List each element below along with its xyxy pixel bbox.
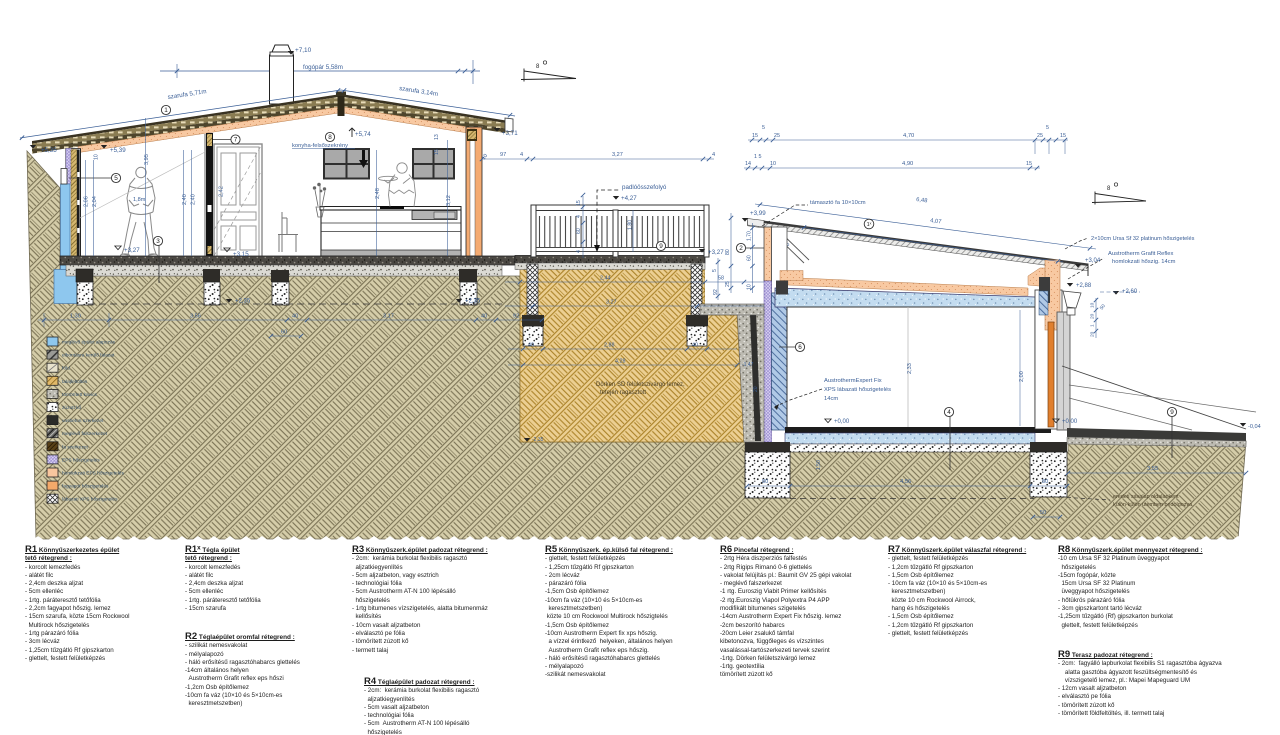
svg-text:3,27: 3,27 bbox=[612, 152, 623, 158]
svg-text:+3,15: +3,15 bbox=[233, 251, 249, 258]
svg-text:+3,71: +3,71 bbox=[502, 130, 518, 137]
svg-text:-2,35: -2,35 bbox=[532, 437, 544, 443]
svg-text:2,40: 2,40 bbox=[182, 194, 188, 205]
svg-text:+4,27: +4,27 bbox=[621, 195, 637, 202]
svg-text:1,30: 1,30 bbox=[70, 314, 81, 320]
svg-text:+2,35: +2,35 bbox=[235, 299, 251, 305]
svg-text:külön-külön ütemben bedolgozva: külön-külön ütemben bedolgozva. bbox=[1113, 502, 1194, 508]
svg-text:14cm: 14cm bbox=[824, 396, 838, 402]
svg-text:8: 8 bbox=[328, 134, 332, 141]
svg-text:40: 40 bbox=[528, 343, 534, 349]
svg-text:tetején ragasztott: tetején ragasztott bbox=[600, 390, 646, 396]
svg-text:80: 80 bbox=[762, 479, 768, 485]
svg-text:9: 9 bbox=[1170, 409, 1174, 416]
svg-text:vasbeton szerkezet: vasbeton szerkezet bbox=[62, 418, 104, 424]
svg-text:60: 60 bbox=[576, 228, 582, 234]
svg-text:50: 50 bbox=[1099, 303, 1107, 311]
svg-text:4: 4 bbox=[520, 152, 523, 158]
svg-text:1 5: 1 5 bbox=[754, 154, 762, 160]
svg-text:2,06: 2,06 bbox=[84, 196, 90, 207]
svg-text:+5,74: +5,74 bbox=[355, 131, 371, 138]
svg-text:2,33: 2,33 bbox=[907, 363, 913, 374]
svg-text:7: 7 bbox=[234, 137, 238, 144]
svg-text:10: 10 bbox=[770, 161, 776, 167]
svg-text:-1,47: -1,47 bbox=[742, 362, 754, 368]
svg-text:szarufa 5,71m: szarufa 5,71m bbox=[167, 88, 207, 101]
svg-text:6: 6 bbox=[798, 344, 802, 351]
svg-text:20: 20 bbox=[753, 386, 759, 392]
svg-text:9: 9 bbox=[659, 243, 663, 250]
svg-text:4: 4 bbox=[947, 409, 951, 416]
svg-text:58: 58 bbox=[718, 276, 724, 282]
svg-text:2,40: 2,40 bbox=[191, 194, 197, 205]
svg-text:80: 80 bbox=[725, 249, 731, 255]
svg-text:2,42: 2,42 bbox=[219, 186, 225, 197]
svg-text:4,90: 4,90 bbox=[902, 161, 913, 167]
svg-text:2×10cm Ursa Sf 32 platinum hős: 2×10cm Ursa Sf 32 platinum hőszigetelés bbox=[1091, 236, 1195, 242]
svg-text:lábazati XPS hőszigetelés: lábazati XPS hőszigetelés bbox=[62, 497, 118, 503]
svg-text:1: 1 bbox=[1090, 324, 1096, 327]
svg-text:40: 40 bbox=[692, 343, 698, 349]
svg-text:elbontásra kerülő falazat: elbontásra kerülő falazat bbox=[62, 353, 115, 359]
svg-text:15: 15 bbox=[576, 200, 582, 206]
svg-text:4: 4 bbox=[576, 215, 582, 218]
svg-text:92: 92 bbox=[513, 314, 519, 320]
svg-text:13: 13 bbox=[434, 134, 440, 140]
svg-text:40: 40 bbox=[481, 314, 487, 320]
svg-text:fagyapot hőszigetelés: fagyapot hőszigetelés bbox=[62, 484, 109, 490]
svg-text:2,48: 2,48 bbox=[375, 188, 381, 199]
svg-text:AustrothermExpert Fix: AustrothermExpert Fix bbox=[824, 378, 882, 384]
svg-text:+0,00: +0,00 bbox=[834, 419, 850, 425]
svg-text:padlóösszefolyó: padlóösszefolyó bbox=[622, 184, 667, 191]
svg-text:2: 2 bbox=[739, 245, 743, 252]
svg-text:1: 1 bbox=[164, 107, 168, 114]
svg-text:40: 40 bbox=[292, 314, 298, 320]
svg-text:fogópár 5,58m: fogópár 5,58m bbox=[303, 64, 343, 71]
svg-text:homlokzati hőszig. 14cm: homlokzati hőszig. 14cm bbox=[1112, 259, 1176, 265]
svg-text:15: 15 bbox=[1060, 133, 1066, 139]
svg-text:+5,39: +5,39 bbox=[110, 147, 126, 154]
svg-text:szarufa 3,14m: szarufa 3,14m bbox=[399, 85, 439, 98]
svg-text:6,48: 6,48 bbox=[916, 197, 928, 204]
svg-text:1,80: 1,80 bbox=[628, 220, 634, 230]
svg-text:15: 15 bbox=[434, 149, 440, 155]
svg-text:5: 5 bbox=[1046, 125, 1049, 131]
svg-text:+3,99: +3,99 bbox=[750, 210, 766, 217]
svg-text:80: 80 bbox=[1042, 479, 1048, 485]
svg-text:fa szerkezet: fa szerkezet bbox=[62, 444, 89, 450]
svg-text:3,56: 3,56 bbox=[190, 314, 201, 320]
svg-text:10: 10 bbox=[1090, 302, 1096, 308]
svg-text:3,95: 3,95 bbox=[144, 154, 150, 165]
svg-text:XPS lábazati hőszigetelés: XPS lábazati hőszigetelés bbox=[824, 387, 891, 393]
svg-text:zúzott kő: zúzott kő bbox=[62, 405, 82, 411]
svg-text:20: 20 bbox=[1090, 331, 1096, 337]
svg-text:1ˣ: 1ˣ bbox=[867, 222, 872, 228]
svg-text:tömörített kavics: tömörített kavics bbox=[62, 392, 98, 398]
svg-text:2,44: 2,44 bbox=[600, 276, 611, 282]
svg-text:3,12: 3,12 bbox=[446, 195, 452, 206]
svg-text:-0,04: -0,04 bbox=[1248, 424, 1261, 430]
svg-text:+2,35: +2,35 bbox=[465, 299, 481, 305]
svg-text:5: 5 bbox=[712, 269, 718, 272]
svg-text:15: 15 bbox=[1026, 161, 1032, 167]
svg-text:EPS hőszigetelés: EPS hőszigetelés bbox=[62, 457, 100, 463]
svg-text:5: 5 bbox=[762, 125, 765, 131]
svg-text:2,88: 2,88 bbox=[604, 343, 615, 349]
svg-text:3,17: 3,17 bbox=[383, 314, 394, 320]
svg-text:1,8m: 1,8m bbox=[133, 197, 146, 203]
svg-text:10: 10 bbox=[94, 154, 100, 160]
svg-text:1,70: 1,70 bbox=[747, 231, 753, 241]
svg-text:3,27: 3,27 bbox=[606, 300, 617, 306]
svg-text:3,55: 3,55 bbox=[1147, 466, 1158, 472]
svg-text:föld: föld bbox=[62, 366, 70, 372]
svg-text:+3,27: +3,27 bbox=[708, 249, 724, 256]
svg-text:1,50: 1,50 bbox=[816, 460, 822, 470]
svg-text:8: 8 bbox=[1107, 186, 1111, 192]
svg-text:támasztó fa 10×10cm: támasztó fa 10×10cm bbox=[810, 200, 866, 206]
svg-text:4,56: 4,56 bbox=[900, 479, 911, 485]
svg-text:4: 4 bbox=[712, 152, 715, 158]
svg-text:8: 8 bbox=[536, 64, 540, 70]
svg-text:4,70: 4,70 bbox=[903, 133, 914, 139]
svg-text:60: 60 bbox=[281, 330, 287, 336]
svg-text:+2,88: +2,88 bbox=[1076, 283, 1092, 289]
svg-text:25: 25 bbox=[774, 133, 780, 139]
svg-text:2,04: 2,04 bbox=[92, 196, 98, 207]
svg-text:4,28: 4,28 bbox=[615, 359, 626, 365]
svg-text:Dörken SD felületszivárgó leme: Dörken SD felületszivárgó lemez, bbox=[596, 382, 685, 388]
svg-text:20: 20 bbox=[1090, 313, 1096, 319]
svg-text:25: 25 bbox=[1037, 133, 1043, 139]
svg-text:10: 10 bbox=[747, 284, 753, 290]
svg-text:+5,35: +5,35 bbox=[41, 147, 57, 154]
svg-text:5: 5 bbox=[114, 175, 118, 182]
svg-text:meglévő épület alapozás: meglévő épület alapozás bbox=[62, 340, 116, 346]
svg-text:Austrotherm Grafit Reflex: Austrotherm Grafit Reflex bbox=[1108, 251, 1173, 257]
svg-text:+7,10: +7,10 bbox=[295, 47, 312, 54]
svg-text:4,07: 4,07 bbox=[930, 218, 942, 225]
svg-text:14: 14 bbox=[745, 161, 751, 167]
svg-text:talajfeltöltés: talajfeltöltés bbox=[62, 379, 88, 385]
svg-text:konyha-felsőszekrény: konyha-felsőszekrény bbox=[292, 143, 348, 149]
svg-text:97: 97 bbox=[500, 152, 506, 158]
svg-text:+3,27: +3,27 bbox=[124, 247, 140, 254]
svg-text:50: 50 bbox=[1040, 510, 1046, 516]
svg-text:+0,00: +0,00 bbox=[1062, 419, 1078, 425]
svg-text:meglévő falszerkezet: meglévő falszerkezet bbox=[62, 431, 108, 437]
svg-text:60: 60 bbox=[747, 255, 753, 261]
svg-text:3: 3 bbox=[156, 238, 160, 245]
svg-text:homlokzati EPS hőszigetelés: homlokzati EPS hőszigetelés bbox=[62, 471, 124, 477]
svg-text:eredeti sávalap oldalanként: eredeti sávalap oldalanként bbox=[1113, 494, 1179, 500]
svg-text:+3,04: +3,04 bbox=[1085, 258, 1101, 264]
svg-text:15: 15 bbox=[752, 133, 758, 139]
svg-text:4: 4 bbox=[576, 250, 582, 253]
svg-text:25: 25 bbox=[725, 281, 731, 287]
